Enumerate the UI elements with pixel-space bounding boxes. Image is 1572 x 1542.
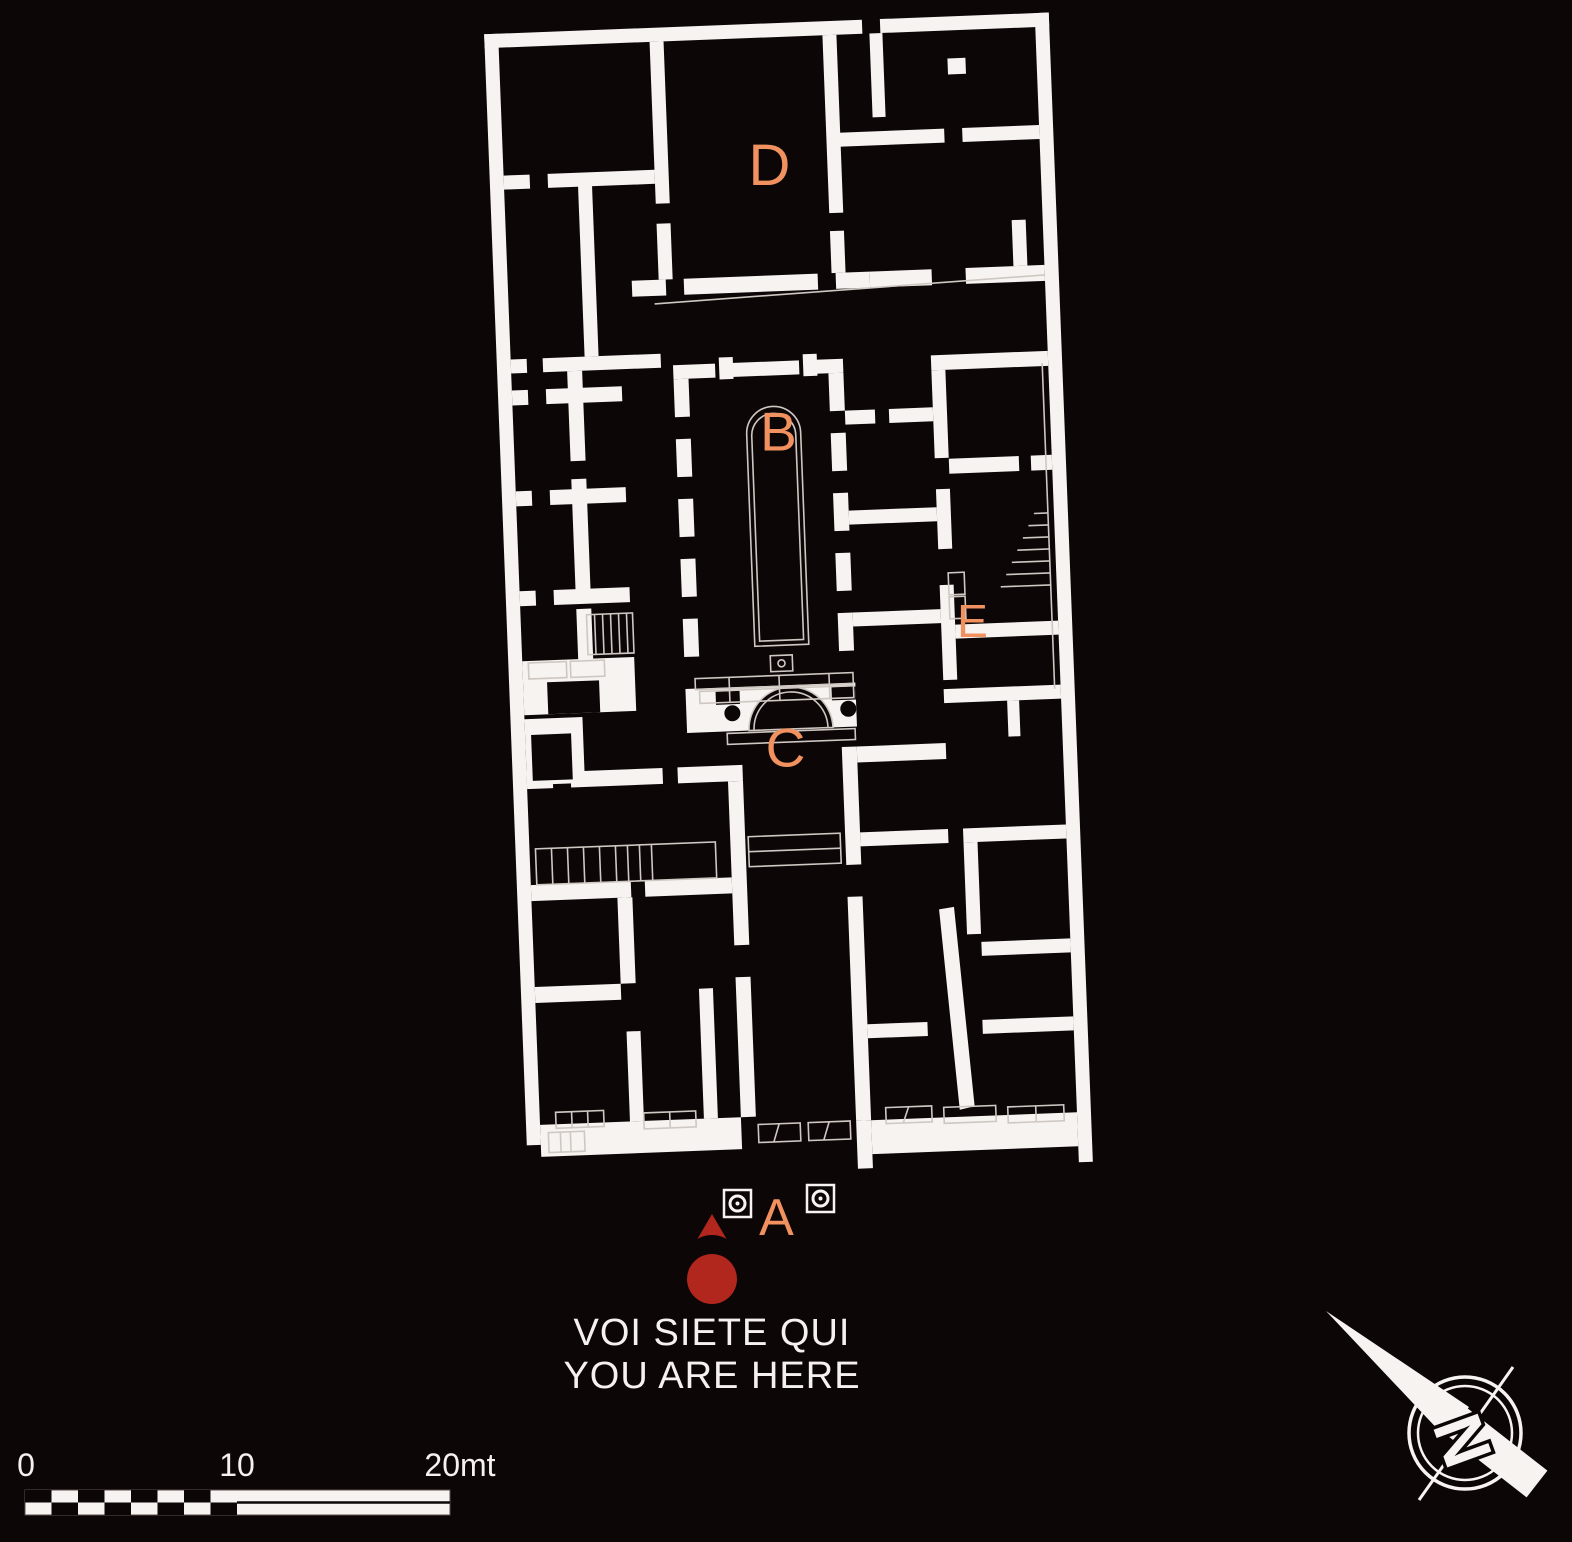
staircase-south [535, 842, 716, 885]
area-label-b: B [760, 405, 798, 460]
scale-label-10: 10 [219, 1447, 255, 1483]
column-base [807, 1185, 834, 1212]
column-base [724, 1190, 751, 1217]
compass-rose: N [1326, 1311, 1547, 1500]
you-are-here-marker-icon [683, 1214, 741, 1304]
staircase-west [586, 613, 634, 655]
pool-base [770, 655, 793, 672]
you-are-here-text: VOI SIETE QUI YOU ARE HERE [563, 1312, 860, 1398]
you-are-here-line-english: YOU ARE HERE [563, 1355, 860, 1398]
you-are-here-line-italian: VOI SIETE QUI [563, 1312, 860, 1355]
scale-bar: 0 10 20mt [17, 1447, 496, 1515]
area-label-e: E [957, 598, 989, 644]
scale-label-0: 0 [17, 1447, 35, 1483]
area-label-a: A [759, 1192, 795, 1244]
staircase-east [998, 513, 1051, 587]
area-label-c: C [766, 721, 807, 776]
slanted-wall [939, 906, 975, 1110]
scale-label-20mt: 20mt [424, 1447, 495, 1483]
area-label-d: D [749, 137, 792, 195]
north-needle-icon [1326, 1311, 1469, 1437]
